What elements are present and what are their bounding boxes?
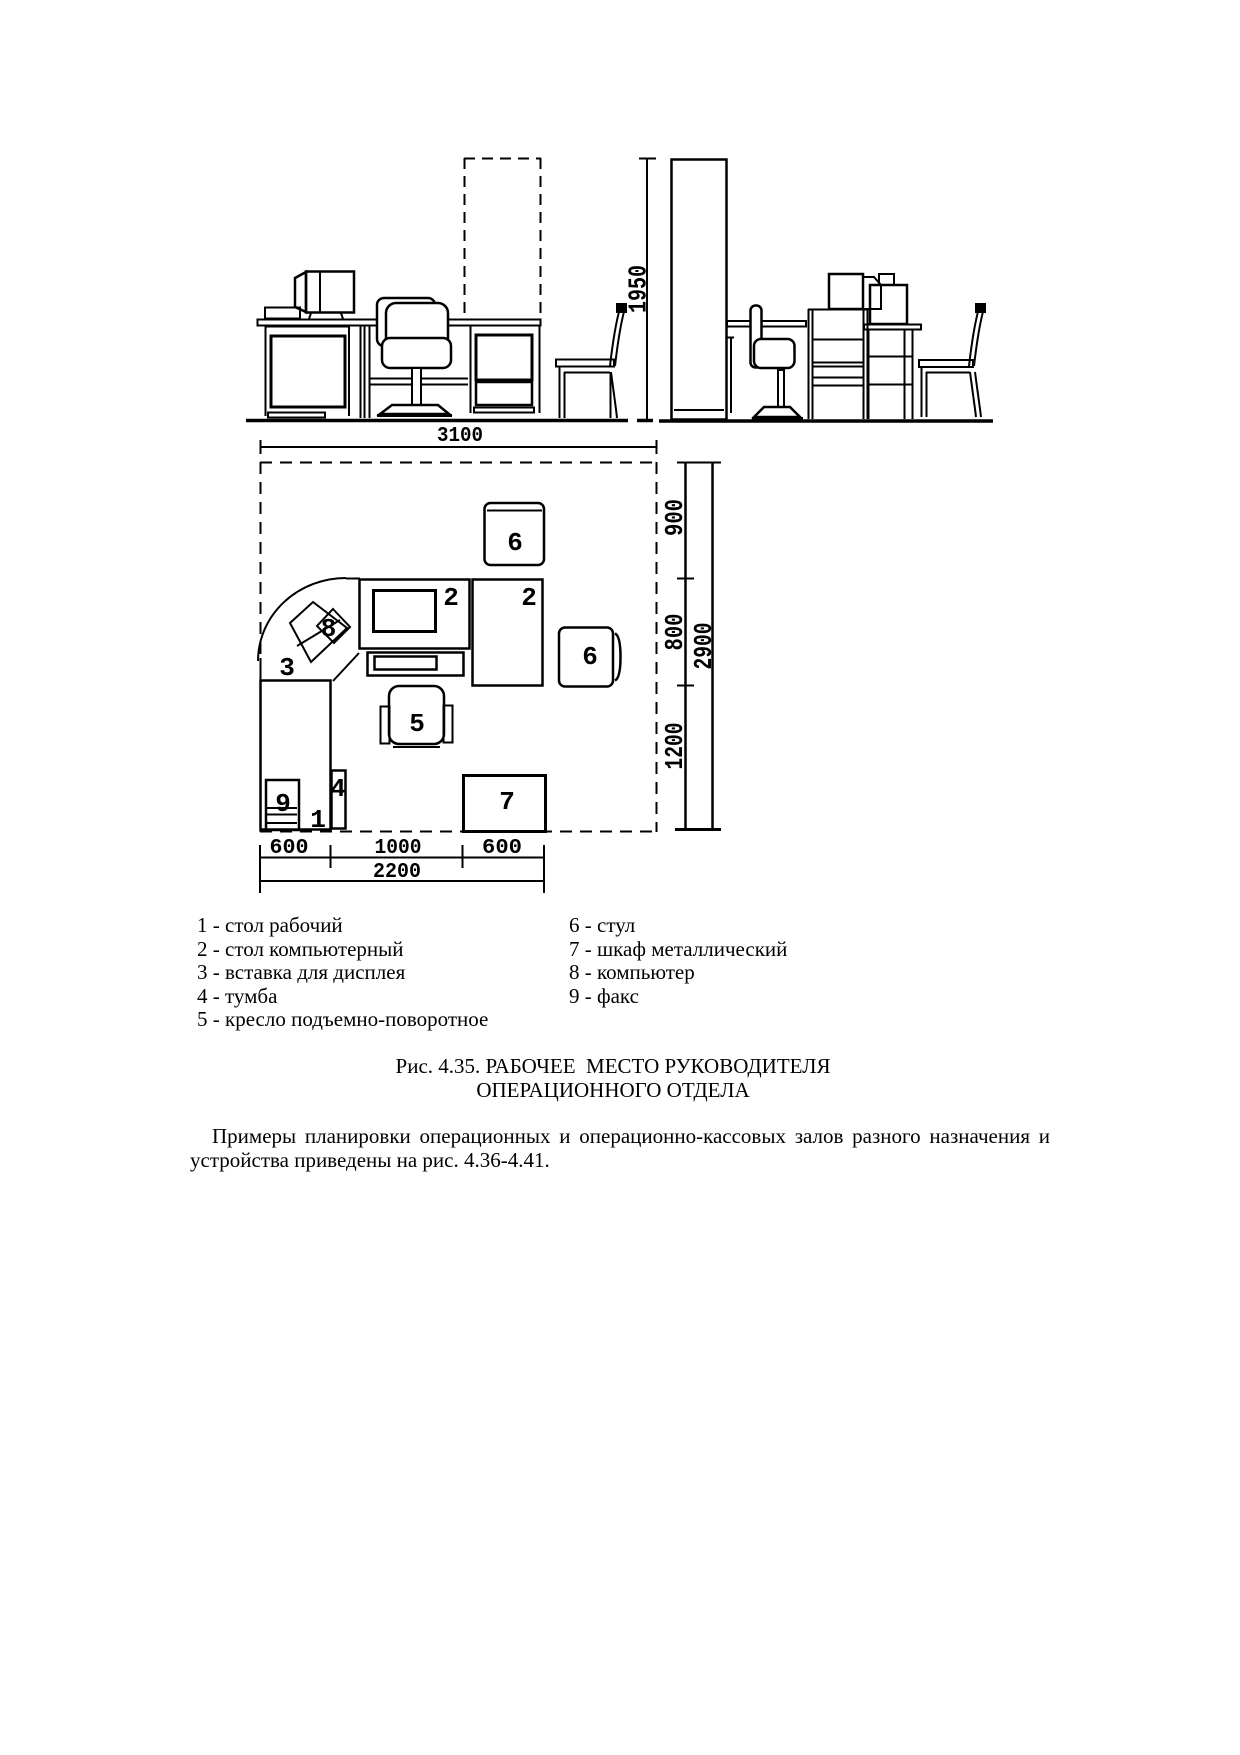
svg-text:8: 8 [321,614,337,644]
svg-text:2200: 2200 [373,861,421,884]
svg-text:3100: 3100 [437,425,483,448]
svg-text:5: 5 [409,709,425,739]
svg-text:7: 7 [499,787,515,817]
svg-text:6: 6 [507,528,523,558]
svg-text:6: 6 [582,642,598,672]
svg-text:2900: 2900 [689,623,719,670]
svg-text:3: 3 [279,653,295,683]
svg-text:9: 9 [275,789,291,819]
svg-text:800: 800 [660,614,690,651]
svg-text:900: 900 [660,499,690,536]
svg-text:2: 2 [443,583,459,613]
svg-text:600: 600 [270,837,309,860]
svg-text:1950: 1950 [624,265,654,313]
svg-text:1: 1 [310,805,326,835]
svg-text:1000: 1000 [375,837,422,860]
svg-text:1200: 1200 [660,723,690,770]
svg-text:600: 600 [482,837,522,860]
svg-text:4: 4 [330,774,346,804]
svg-text:2: 2 [521,583,537,613]
